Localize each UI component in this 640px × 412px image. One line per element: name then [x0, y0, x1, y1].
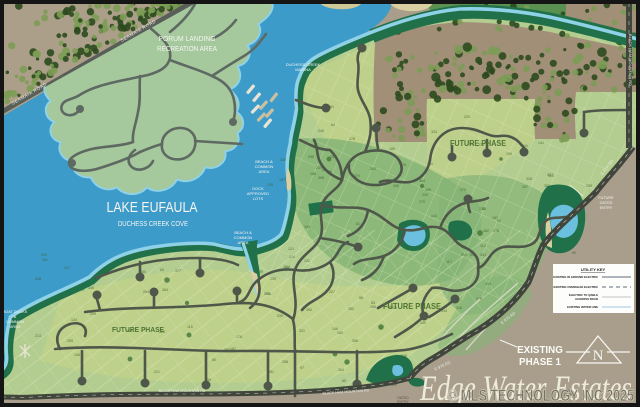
- svg-text:339: 339: [277, 314, 283, 318]
- svg-text:89: 89: [572, 251, 576, 255]
- svg-text:AREA: AREA: [10, 325, 21, 329]
- svg-text:EXISTING IN GROUND ELECTRIC: EXISTING IN GROUND ELECTRIC: [553, 275, 598, 279]
- svg-text:358: 358: [352, 339, 358, 343]
- svg-text:352: 352: [348, 307, 354, 311]
- svg-text:ENTRY: ENTRY: [600, 206, 613, 210]
- svg-text:316: 316: [456, 306, 462, 310]
- svg-text:256: 256: [370, 305, 376, 309]
- svg-text:FUTURE PHASE: FUTURE PHASE: [383, 301, 441, 311]
- svg-text:220: 220: [422, 193, 428, 197]
- svg-text:124: 124: [71, 318, 77, 322]
- svg-text:63: 63: [160, 268, 164, 272]
- svg-text:141: 141: [538, 141, 544, 145]
- svg-text:331: 331: [299, 329, 305, 333]
- svg-text:336: 336: [280, 158, 286, 162]
- svg-text:139: 139: [270, 277, 276, 281]
- svg-text:253: 253: [461, 253, 467, 257]
- svg-text:214: 214: [289, 255, 295, 259]
- svg-text:377: 377: [175, 269, 181, 273]
- svg-text:FUTURE PHASE: FUTURE PHASE: [450, 139, 507, 148]
- svg-text:276: 276: [493, 229, 499, 233]
- svg-text:326: 326: [526, 177, 532, 181]
- svg-text:302: 302: [370, 167, 376, 171]
- svg-text:MARINA: MARINA: [295, 67, 311, 72]
- svg-text:169: 169: [304, 225, 310, 229]
- svg-text:295: 295: [308, 155, 314, 159]
- svg-text:BOAT DOCKS: BOAT DOCKS: [3, 310, 28, 314]
- svg-text:84: 84: [331, 123, 335, 127]
- svg-text:357: 357: [547, 173, 553, 177]
- svg-text:239: 239: [41, 253, 47, 257]
- svg-text:109: 109: [506, 152, 512, 156]
- svg-text:80: 80: [212, 358, 216, 362]
- svg-text:BLACK HAM MOUNTAIN RD: BLACK HAM MOUNTAIN RD: [159, 389, 206, 393]
- svg-text:245: 245: [318, 129, 324, 133]
- svg-text:308: 308: [318, 176, 324, 180]
- svg-text:317: 317: [64, 266, 70, 270]
- svg-text:178: 178: [349, 137, 355, 141]
- svg-text:117: 117: [446, 260, 452, 264]
- svg-text:&: &: [14, 315, 17, 319]
- svg-text:259: 259: [586, 184, 592, 188]
- svg-text:254: 254: [143, 290, 149, 294]
- svg-text:185: 185: [389, 147, 395, 151]
- svg-text:121: 121: [288, 247, 294, 251]
- svg-text:186: 186: [310, 172, 316, 176]
- svg-text:194: 194: [485, 282, 491, 286]
- svg-text:221: 221: [154, 370, 160, 374]
- svg-text:GATED: GATED: [600, 201, 613, 205]
- svg-text:EXISTING: EXISTING: [517, 345, 563, 356]
- svg-text:259: 259: [67, 339, 73, 343]
- svg-text:382: 382: [483, 229, 489, 233]
- svg-text:LAKE EUFAULA: LAKE EUFAULA: [107, 200, 198, 216]
- svg-text:334: 334: [431, 130, 437, 134]
- svg-text:288: 288: [282, 360, 288, 364]
- svg-text:227: 227: [329, 290, 335, 294]
- svg-text:114: 114: [480, 244, 486, 248]
- svg-text:RECREATION AREA: RECREATION AREA: [157, 46, 217, 53]
- svg-text:384: 384: [419, 179, 425, 183]
- svg-text:370: 370: [460, 188, 466, 192]
- svg-text:DUCHESS CREEK COVE: DUCHESS CREEK COVE: [118, 221, 188, 228]
- svg-text:AREA: AREA: [259, 169, 270, 174]
- svg-text:285: 285: [316, 166, 322, 170]
- svg-text:FUTURE PHASE: FUTURE PHASE: [112, 325, 164, 334]
- svg-text:N: N: [593, 348, 604, 364]
- svg-text:© MLS TECHNOLOGY INC 2025: © MLS TECHNOLOGY INC 2025: [448, 386, 634, 405]
- svg-text:220: 220: [464, 115, 470, 119]
- svg-text:122: 122: [304, 259, 310, 263]
- svg-text:348: 348: [35, 277, 41, 281]
- svg-text:BLACK HAM MOUNTAIN RD: BLACK HAM MOUNTAIN RD: [628, 34, 633, 86]
- svg-text:EXISTING WATER LINE: EXISTING WATER LINE: [567, 305, 598, 309]
- svg-text:PHASE 1: PHASE 1: [519, 357, 561, 368]
- svg-text:97: 97: [300, 366, 304, 370]
- svg-text:LOTS: LOTS: [253, 196, 264, 201]
- svg-text:213: 213: [35, 334, 41, 338]
- svg-text:FUTURE: FUTURE: [598, 196, 614, 200]
- svg-text:COMMON: COMMON: [6, 320, 24, 324]
- svg-text:65: 65: [342, 379, 346, 383]
- svg-text:213: 213: [264, 292, 270, 296]
- svg-text:340: 340: [393, 184, 399, 188]
- svg-text:195: 195: [425, 188, 431, 192]
- svg-text:115: 115: [187, 325, 193, 329]
- svg-text:136: 136: [74, 353, 80, 357]
- svg-text:100: 100: [420, 321, 426, 325]
- svg-text:160: 160: [337, 331, 343, 335]
- svg-text:144: 144: [431, 214, 437, 218]
- svg-text:164: 164: [338, 368, 344, 372]
- svg-text:167: 167: [522, 185, 528, 189]
- svg-text:ACHORSS ROAD: ACHORSS ROAD: [575, 297, 598, 301]
- svg-text:146: 146: [332, 327, 338, 331]
- svg-text:AREA: AREA: [238, 240, 249, 245]
- svg-text:270: 270: [419, 200, 425, 204]
- svg-text:176: 176: [236, 335, 242, 339]
- svg-text:125: 125: [267, 183, 273, 187]
- svg-text:UTILITY KEY: UTILITY KEY: [581, 267, 606, 272]
- svg-text:275: 275: [479, 207, 485, 211]
- svg-text:331: 331: [480, 253, 486, 257]
- svg-text:339: 339: [90, 312, 96, 316]
- svg-text:390: 390: [306, 308, 312, 312]
- svg-text:187: 187: [279, 178, 285, 182]
- svg-text:EXISTING OVERHEAD ELECTRIC: EXISTING OVERHEAD ELECTRIC: [554, 285, 598, 289]
- svg-text:264: 264: [162, 288, 168, 292]
- svg-text:88: 88: [359, 296, 363, 300]
- svg-text:361: 361: [42, 258, 48, 262]
- svg-text:PORUM LANDING: PORUM LANDING: [159, 36, 216, 43]
- svg-text:187: 187: [492, 216, 498, 220]
- svg-text:81: 81: [356, 222, 360, 226]
